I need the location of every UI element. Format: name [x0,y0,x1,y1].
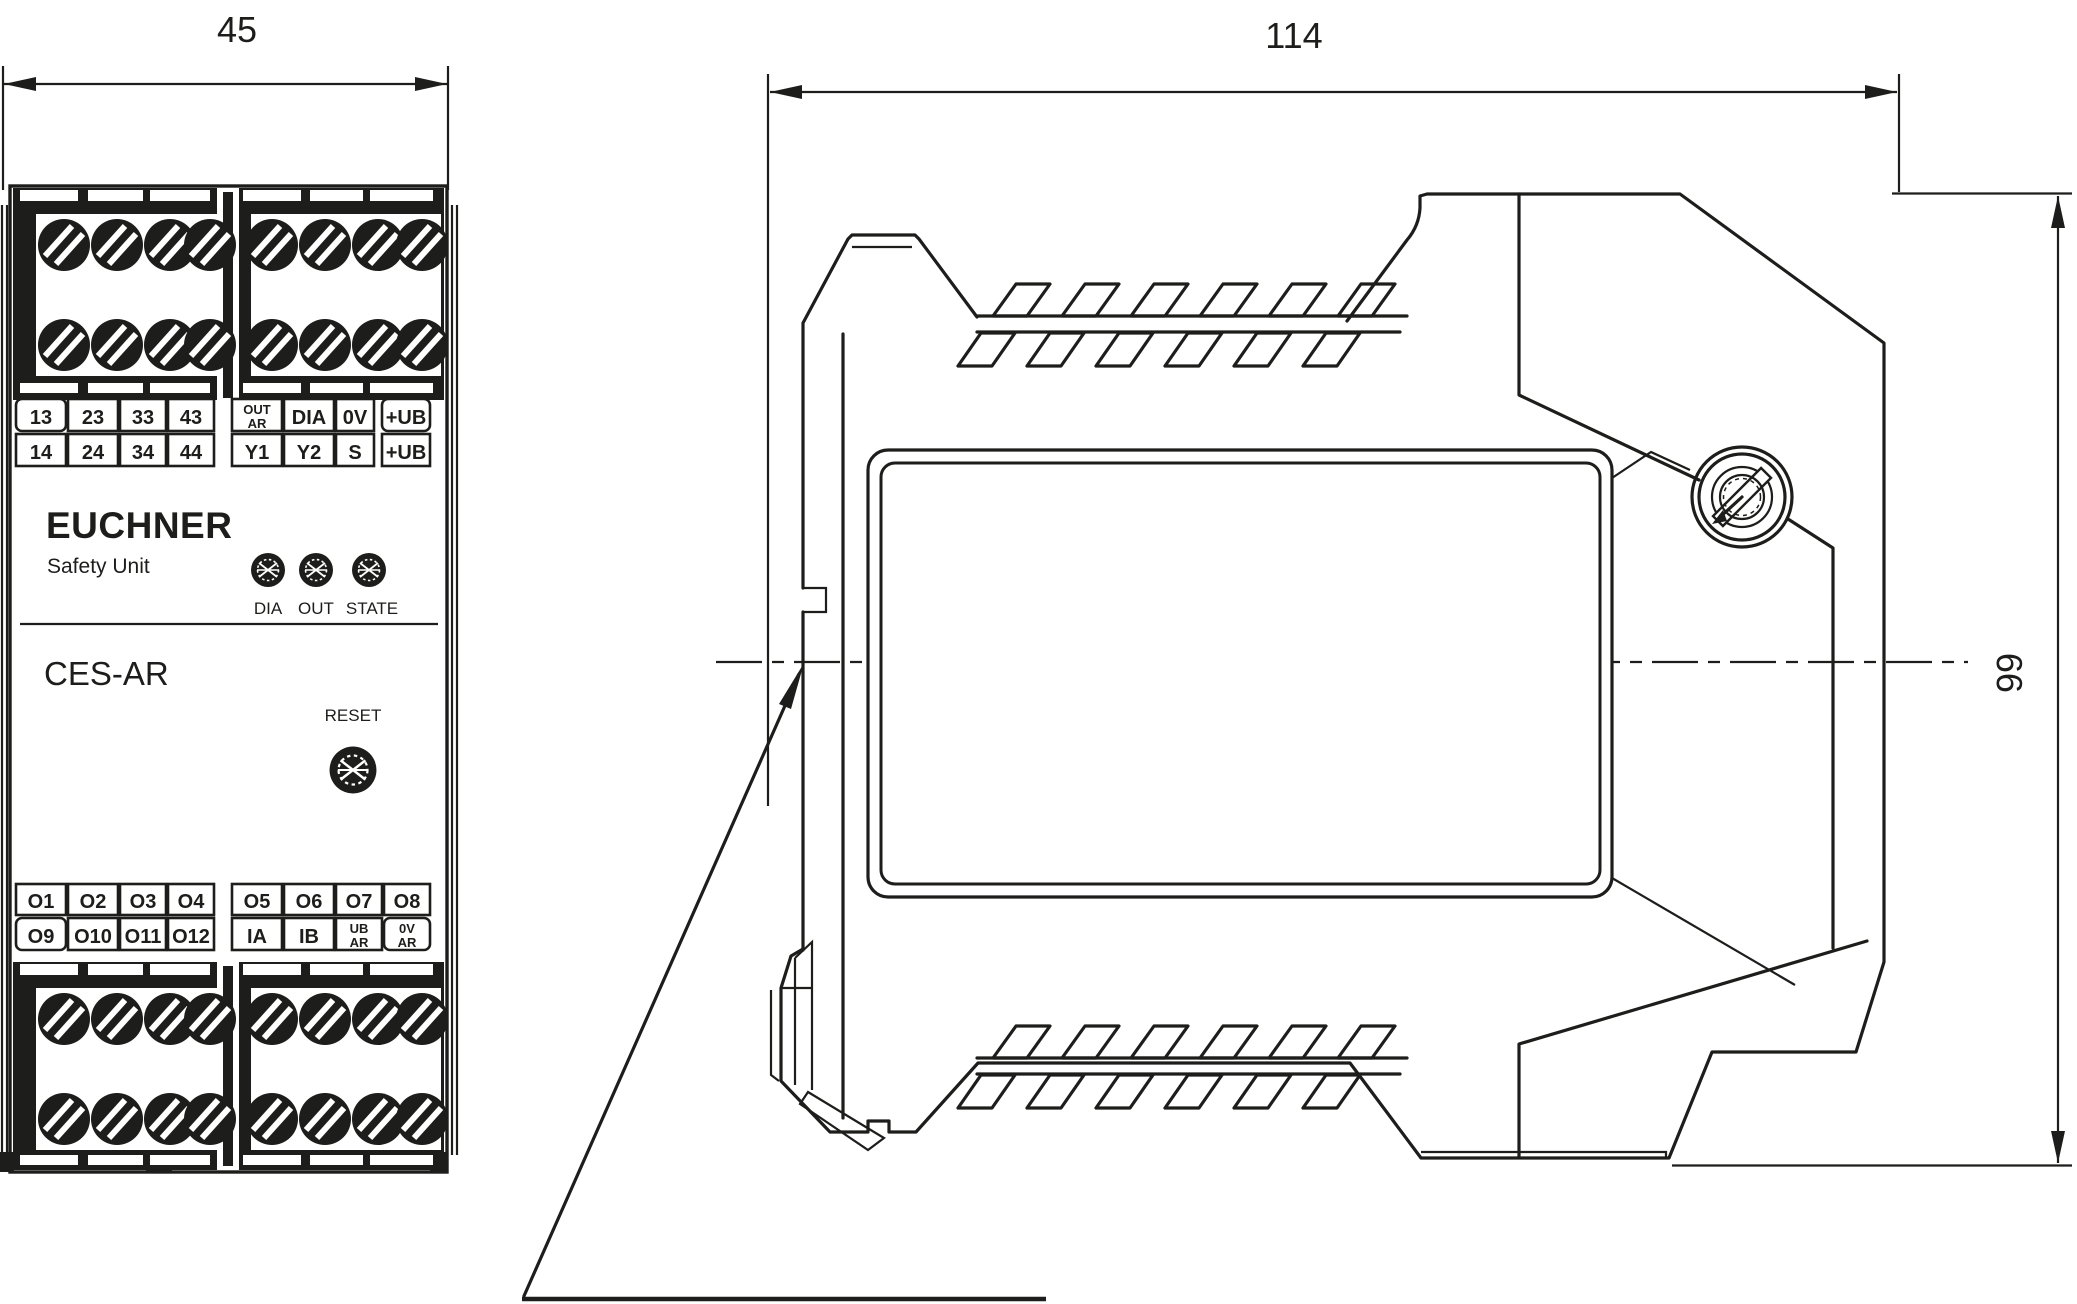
terminal-label: +UB [386,407,427,429]
depth-dimension-value: 114 [1265,15,1322,56]
height-dimension-value: 99 [1989,653,2030,693]
arrow-left-icon [4,77,36,91]
width-dimension-value: 45 [217,9,257,50]
led-label-out: OUT [298,599,334,618]
dimension-99: 99 [1672,194,2072,1166]
terminal-label: O3 [130,891,157,913]
terminal-label: AR [350,935,369,950]
terminal-label: 23 [82,407,104,429]
dimension-drawing: 13 23 33 43 OUT AR DIA 0V +UB 14 24 34 4… [0,0,2077,1304]
terminal-label: IA [247,926,267,948]
terminal-label: O1 [28,891,55,913]
fixing-screw[interactable] [1692,447,1792,547]
terminal-label: 33 [132,407,154,429]
state-led-icon [352,553,386,587]
terminal-label: O6 [296,891,323,913]
terminal-label: 0V [399,921,415,936]
side-label-plate-inner [881,463,1600,884]
product-subtitle: Safety Unit [47,555,150,578]
arrow-down-icon [2051,1131,2065,1163]
terminal-label: O5 [244,891,271,913]
terminal-label: 44 [180,442,203,464]
terminal-label: O10 [74,926,112,948]
arrow-right-icon [415,77,447,91]
bottom-terminal-block [13,962,448,1170]
terminal-label: O9 [28,926,55,948]
top-terminal-block [13,188,448,400]
terminal-label: Y2 [297,442,321,464]
terminal-label: O11 [125,926,162,948]
manufacturer-logo: EUCHNER [46,505,232,546]
led-label-state: STATE [346,599,398,618]
leader-arrowhead-icon [779,663,804,709]
terminal-label: +UB [386,442,427,464]
side-view [716,194,1968,1158]
arrow-left-icon [770,85,802,99]
led-label-dia: DIA [254,599,283,618]
terminal-label: O2 [80,891,107,913]
terminal-label: O4 [178,891,206,913]
top-vent-louvers [958,284,1407,366]
terminal-label: O12 [172,926,210,948]
din-rail-clip [771,942,884,1150]
terminal-label: S [348,442,361,464]
out-led-icon [299,553,333,587]
terminal-label: OUT [243,402,271,417]
terminal-label: Y1 [245,442,269,464]
terminal-label: AR [398,935,417,950]
terminal-label: O7 [346,891,373,913]
terminal-label: O8 [394,891,421,913]
reset-button[interactable] [330,747,377,794]
drawing-canvas: 13 23 33 43 OUT AR DIA 0V +UB 14 24 34 4… [0,0,2077,1304]
terminal-label: IB [299,926,319,948]
reset-label: RESET [325,706,382,725]
terminal-label: 43 [180,407,202,429]
front-view: 13 23 33 43 OUT AR DIA 0V +UB 14 24 34 4… [0,186,457,1172]
bottom-vent-louvers [958,1026,1407,1108]
terminal-label: 0V [343,407,368,429]
terminal-label: UB [350,921,369,936]
terminal-label: 24 [82,442,105,464]
terminal-label: 14 [30,442,53,464]
arrow-right-icon [1865,85,1897,99]
dia-led-icon [251,553,285,587]
model-name: CES-AR [44,655,169,692]
terminal-label: 34 [132,442,155,464]
terminal-label: 13 [30,407,52,429]
dimension-45: 45 [3,9,448,190]
arrow-up-icon [2051,196,2065,228]
terminal-label: AR [248,416,267,431]
terminal-label: DIA [292,407,326,429]
